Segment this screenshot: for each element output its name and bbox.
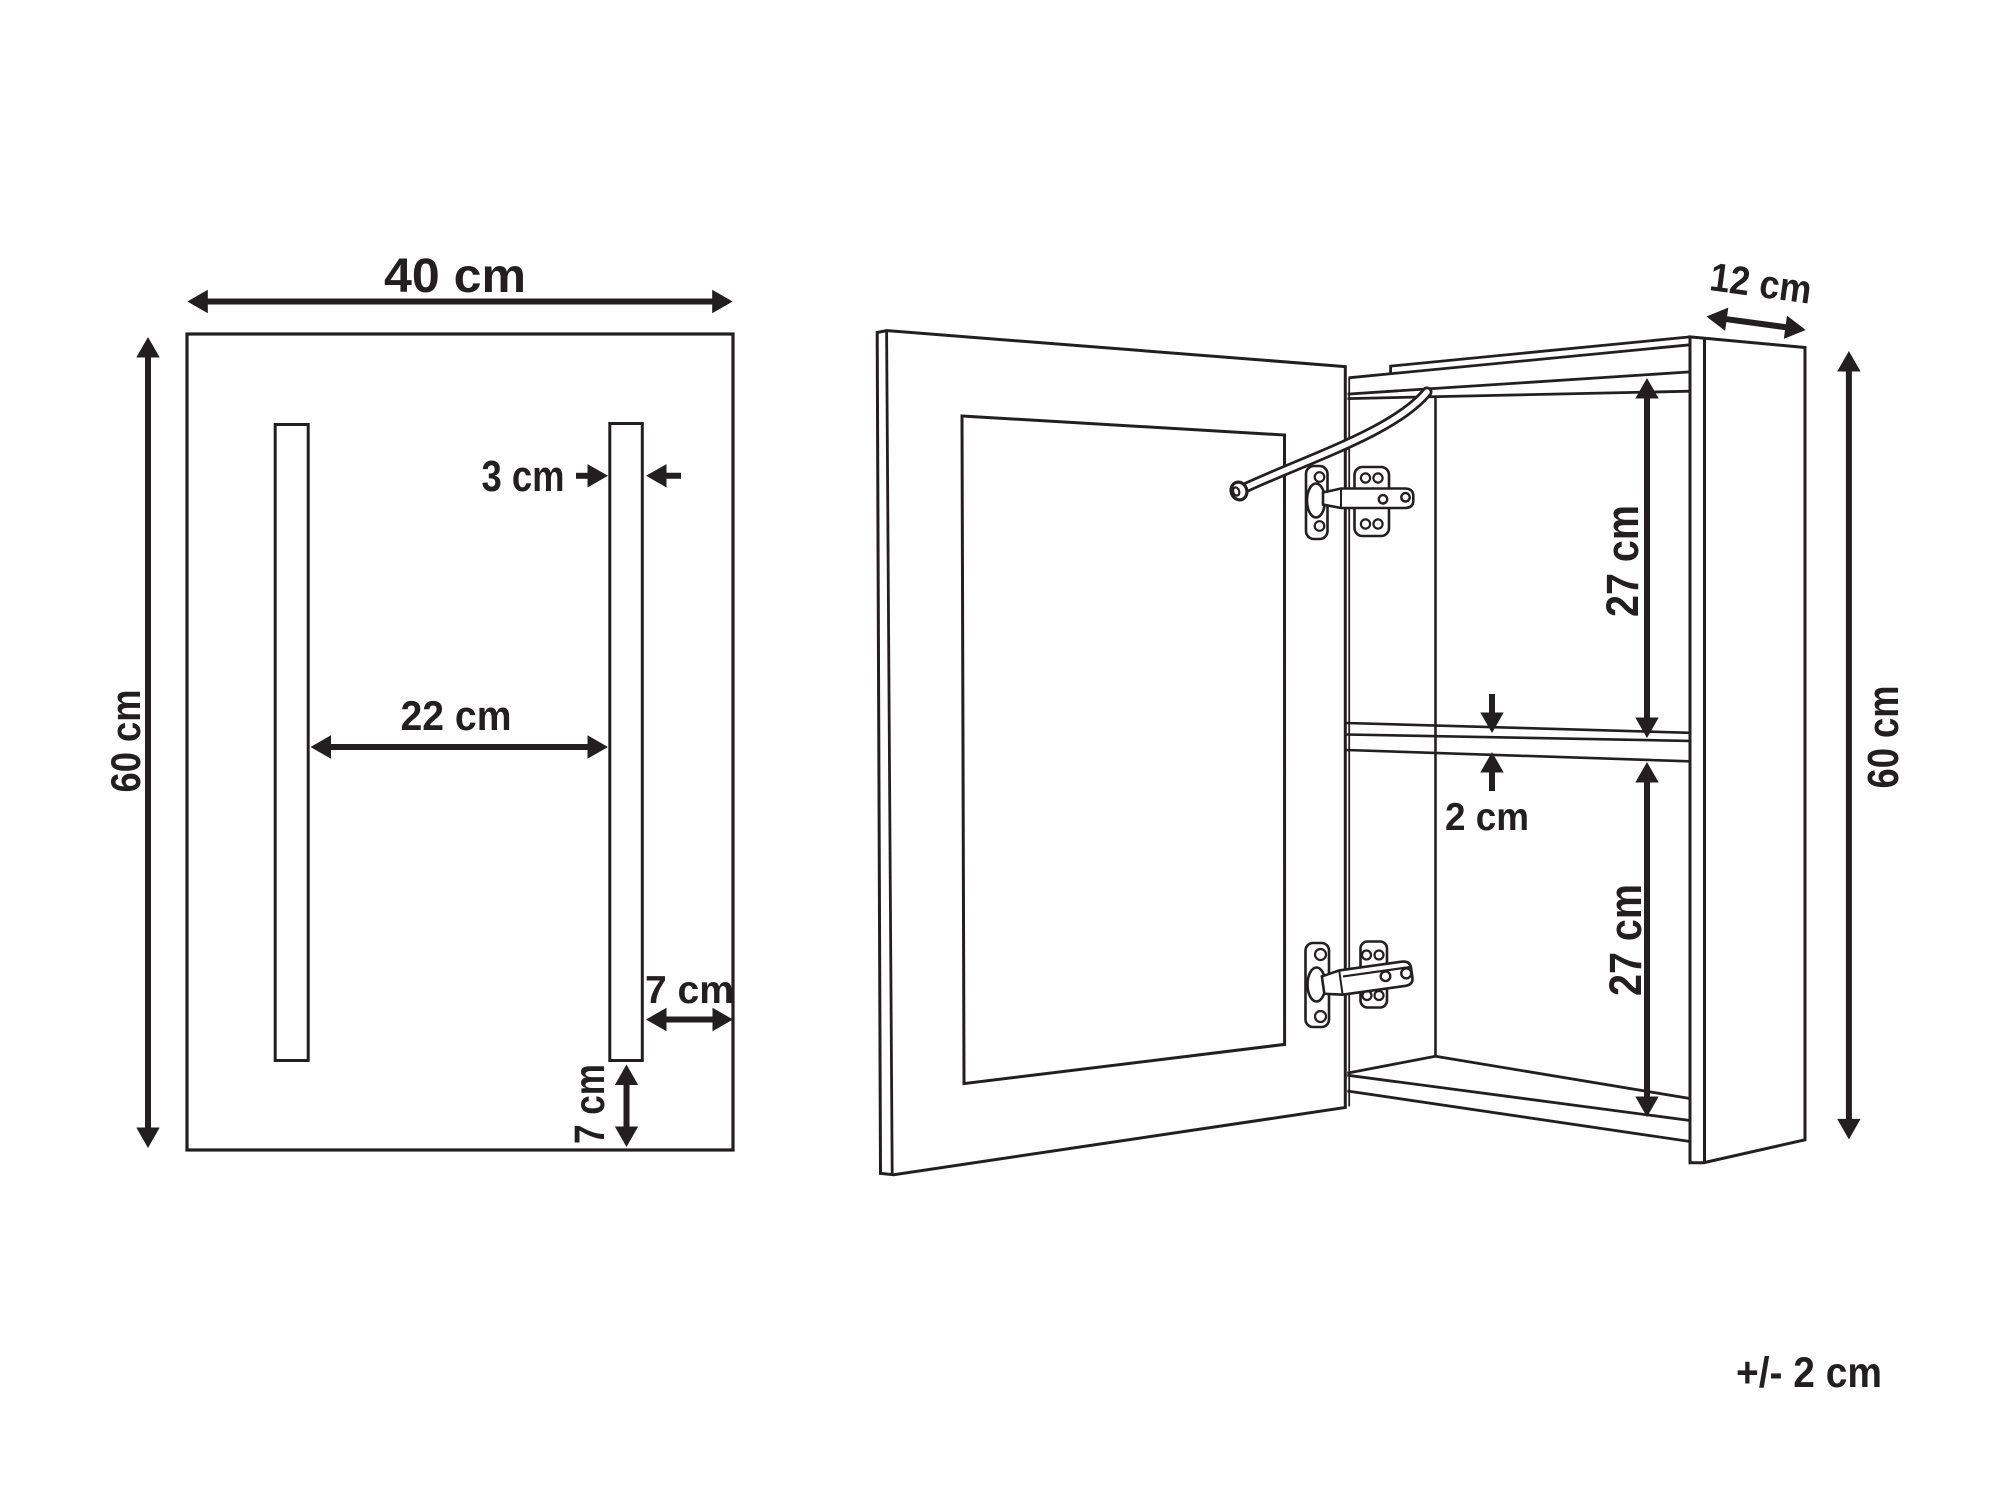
svg-text:+/- 2 cm: +/- 2 cm	[1736, 1349, 1882, 1397]
svg-text:3 cm: 3 cm	[482, 452, 565, 501]
svg-text:7 cm: 7 cm	[645, 969, 734, 1012]
svg-text:2 cm: 2 cm	[1445, 796, 1529, 839]
svg-text:22 cm: 22 cm	[401, 692, 512, 739]
svg-text:7 cm: 7 cm	[566, 1064, 614, 1144]
svg-text:27 cm: 27 cm	[1597, 505, 1648, 617]
svg-text:27 cm: 27 cm	[1600, 884, 1651, 996]
svg-text:60 cm: 60 cm	[102, 690, 149, 793]
svg-text:60 cm: 60 cm	[1859, 686, 1908, 789]
svg-text:40 cm: 40 cm	[384, 250, 526, 303]
svg-text:12 cm: 12 cm	[1707, 255, 1814, 312]
